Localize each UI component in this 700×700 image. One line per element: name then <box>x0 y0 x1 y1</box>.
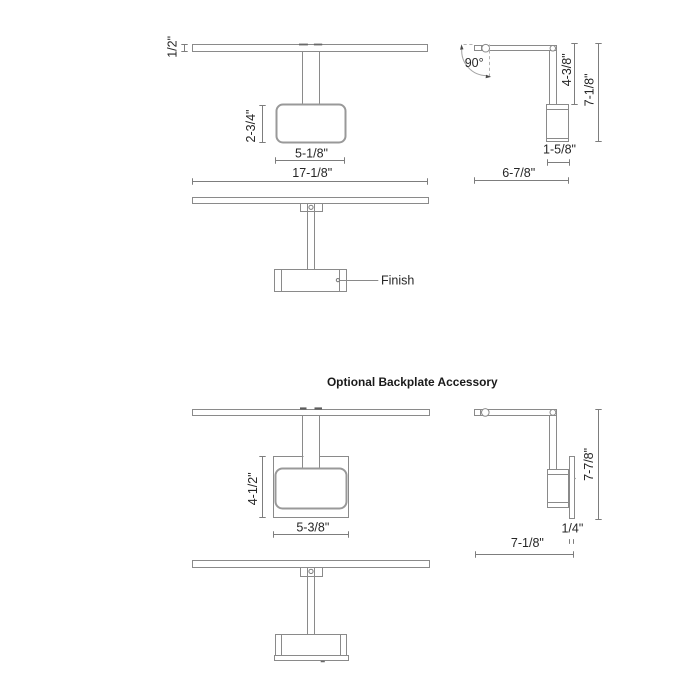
svg-text:7-7/8": 7-7/8" <box>582 448 596 481</box>
svg-text:5-3/8": 5-3/8" <box>296 521 329 535</box>
svg-text:2-3/4": 2-3/4" <box>244 110 258 143</box>
svg-text:1/2": 1/2" <box>166 36 180 58</box>
svg-text:4-3/8": 4-3/8" <box>560 53 574 86</box>
svg-text:90°: 90° <box>465 56 484 70</box>
svg-text:5-1/8": 5-1/8" <box>295 146 328 160</box>
svg-text:Optional Backplate Accessory: Optional Backplate Accessory <box>327 375 498 389</box>
svg-text:7-1/8": 7-1/8" <box>511 536 544 550</box>
svg-text:7-1/8": 7-1/8" <box>582 73 596 106</box>
svg-text:1-5/8": 1-5/8" <box>543 143 576 157</box>
svg-text:1/4": 1/4" <box>561 521 583 535</box>
svg-text:17-1/8": 17-1/8" <box>292 166 332 180</box>
svg-text:6-7/8": 6-7/8" <box>502 166 535 180</box>
svg-text:4-1/2": 4-1/2" <box>246 472 260 505</box>
svg-text:Finish: Finish <box>381 274 414 288</box>
